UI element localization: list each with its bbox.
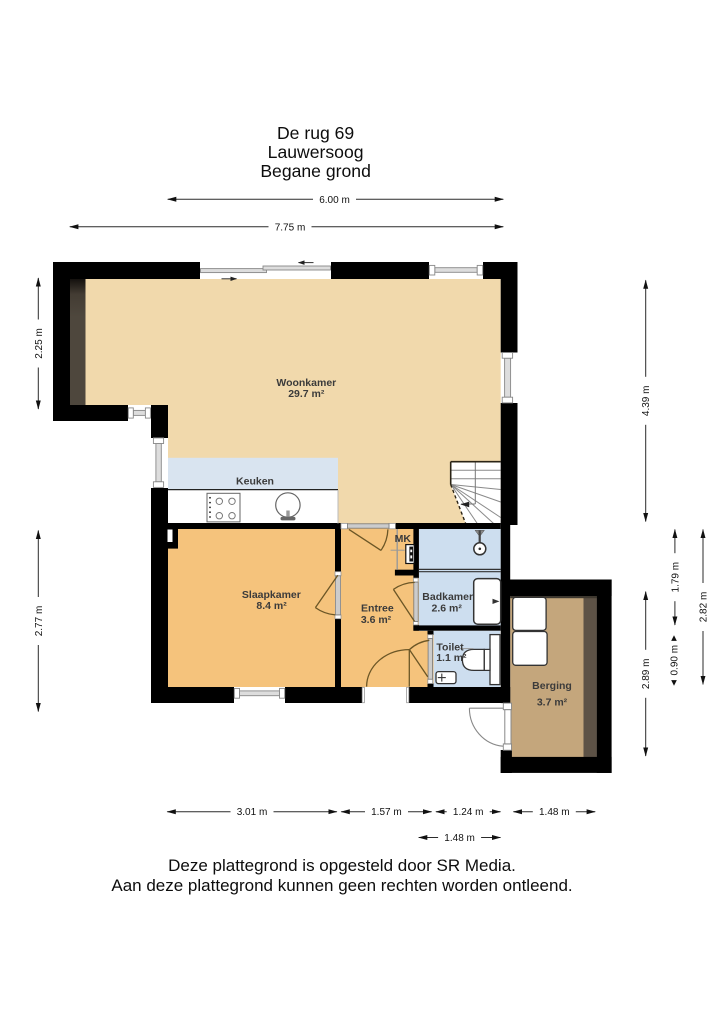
svg-text:Keuken: Keuken [236,476,274,488]
svg-text:Badkamer: Badkamer [422,591,473,603]
svg-text:29.7 m²: 29.7 m² [288,388,325,400]
svg-text:Aan deze plattegrond kunnen ge: Aan deze plattegrond kunnen geen rechten… [111,876,572,895]
svg-text:3.01 m: 3.01 m [237,807,268,818]
svg-text:8.4 m²: 8.4 m² [256,600,287,612]
svg-text:1.79 m: 1.79 m [670,562,681,593]
svg-text:2.25 m: 2.25 m [34,328,45,359]
svg-text:3.6 m²: 3.6 m² [361,614,392,626]
svg-text:2.6 m²: 2.6 m² [432,603,463,615]
svg-text:1.48 m: 1.48 m [539,807,570,818]
svg-text:Entree: Entree [361,603,394,615]
svg-text:3.7 m²: 3.7 m² [537,696,568,708]
svg-text:1.48 m: 1.48 m [444,833,475,844]
svg-text:6.00 m: 6.00 m [319,195,350,206]
svg-text:1.57 m: 1.57 m [371,807,402,818]
svg-text:Lauwersoog: Lauwersoog [268,142,364,162]
svg-text:2.77 m: 2.77 m [34,606,45,637]
svg-text:4.39 m: 4.39 m [641,386,652,417]
svg-text:1.24 m: 1.24 m [453,807,484,818]
svg-text:De rug 69: De rug 69 [277,123,354,143]
svg-text:Begane grond: Begane grond [260,161,371,181]
svg-text:1.1 m²: 1.1 m² [436,652,467,664]
svg-text:2.82 m: 2.82 m [699,592,710,623]
svg-text:2.89 m: 2.89 m [641,659,652,690]
svg-text:MK: MK [395,533,412,545]
svg-text:7.75 m: 7.75 m [275,222,306,233]
svg-text:Deze plattegrond is opgesteld: Deze plattegrond is opgesteld door SR Me… [168,856,516,875]
svg-text:0.90 m: 0.90 m [669,645,680,676]
svg-text:Berging: Berging [532,680,572,692]
